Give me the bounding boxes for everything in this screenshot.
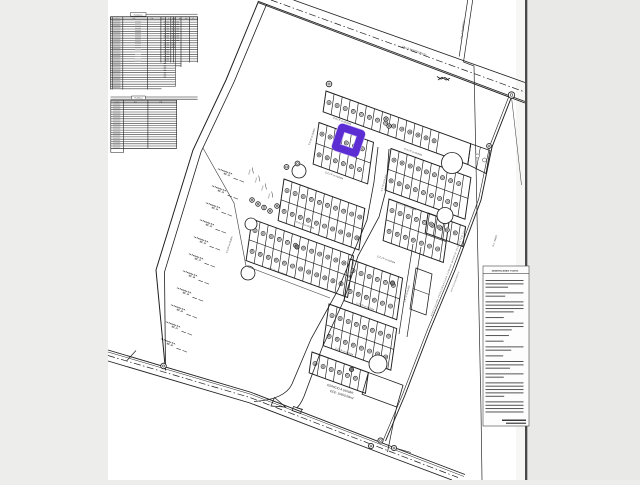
svg-text:PLANILLA: PLANILLA: [134, 97, 143, 100]
svg-text:OBSERVACIONES Y NOTAS: OBSERVACIONES Y NOTAS: [492, 270, 519, 273]
svg-text:PLANILLA: PLANILLA: [134, 14, 144, 17]
